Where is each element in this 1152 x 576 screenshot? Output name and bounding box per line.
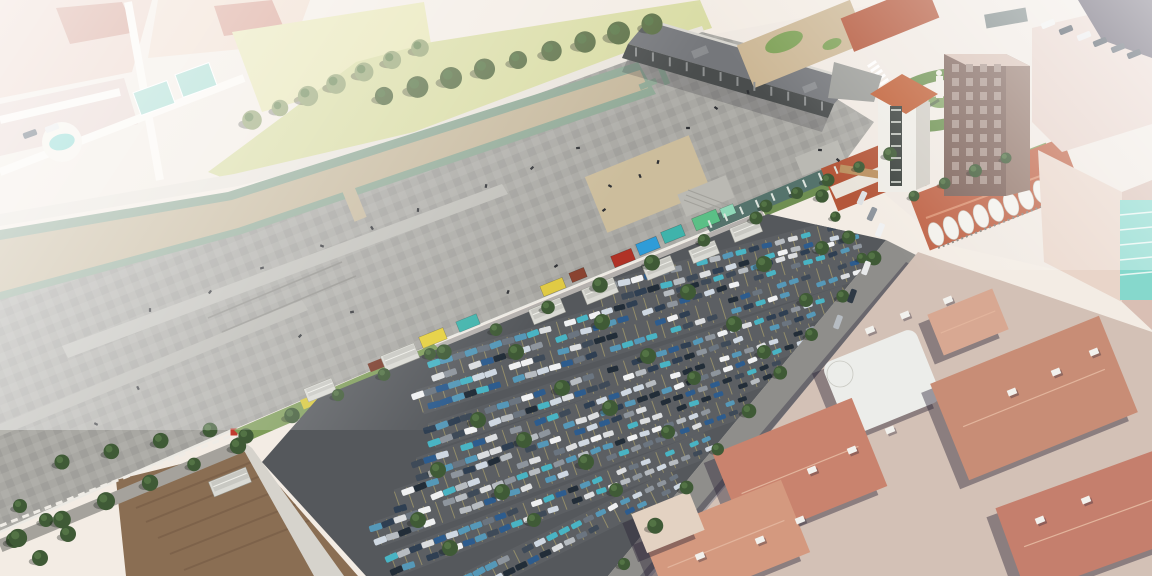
tree-highlight <box>412 514 419 521</box>
tree-highlight <box>155 435 162 442</box>
tree-highlight <box>529 515 535 521</box>
tree-highlight <box>189 459 195 465</box>
light-wash-topright <box>690 0 1152 270</box>
tree-highlight <box>34 552 41 559</box>
tree-highlight <box>649 520 656 527</box>
tree-highlight <box>580 456 587 463</box>
tree-highlight <box>807 330 813 336</box>
tree-highlight <box>15 501 21 507</box>
tree-highlight <box>41 515 47 521</box>
tree-highlight <box>55 513 63 521</box>
tree-highlight <box>56 456 63 463</box>
tree-highlight <box>496 486 503 493</box>
tree-highlight <box>611 485 617 491</box>
tree-highlight <box>518 434 525 441</box>
tree-highlight <box>801 295 807 301</box>
tree-highlight <box>444 542 451 549</box>
tree-highlight <box>759 347 765 353</box>
tree-highlight <box>106 446 113 453</box>
tree-highlight <box>681 482 687 488</box>
aerial-render-viewport <box>0 0 1152 576</box>
tree-highlight <box>728 318 735 325</box>
light-wash-topleft <box>0 0 720 430</box>
tree-highlight <box>775 368 781 374</box>
tree-highlight <box>232 440 239 447</box>
tree-highlight <box>619 559 624 564</box>
tree-highlight <box>838 291 844 297</box>
tree-highlight <box>713 445 719 451</box>
corner-turret <box>827 361 853 387</box>
tree-highlight <box>11 531 19 539</box>
tree-highlight <box>240 430 247 437</box>
tree-highlight <box>99 494 107 502</box>
tree-highlight <box>744 406 751 413</box>
tree-highlight <box>432 464 439 471</box>
tree-highlight <box>144 477 151 484</box>
tree-highlight <box>62 528 69 535</box>
